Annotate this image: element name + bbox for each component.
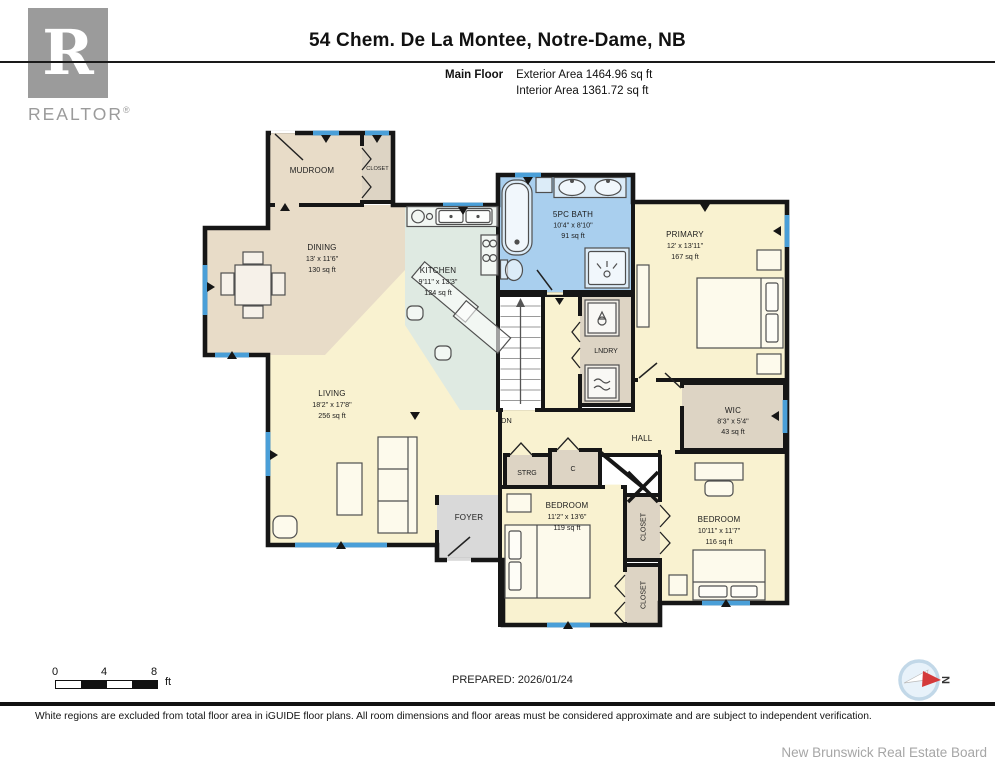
floorplan-page: R REALTOR® 54 Chem. De La Montee, Notre-… xyxy=(0,0,995,768)
scale-unit: ft xyxy=(165,676,171,688)
label-dining-area: 130 sq ft xyxy=(308,265,336,274)
label-stairs-dn: DN xyxy=(501,416,512,425)
scale-4: 4 xyxy=(101,666,107,678)
room-foyer xyxy=(437,495,503,560)
label-primary: PRIMARY xyxy=(666,230,704,239)
label-primary-dims: 12' x 13'11" xyxy=(667,241,704,250)
realtor-brand-text: REALTOR xyxy=(28,104,123,124)
label-dining: DINING xyxy=(307,243,336,252)
exterior-area: Exterior Area 1464.96 sq ft xyxy=(516,69,652,81)
nightstand-icon xyxy=(669,575,687,595)
window xyxy=(515,173,541,178)
window xyxy=(365,131,389,136)
sofa-icon xyxy=(378,437,417,533)
label-wic-dims: 8'3" x 5'4" xyxy=(717,417,749,426)
dryer-icon xyxy=(585,365,619,401)
label-bedroom1: BEDROOM xyxy=(546,501,589,510)
window xyxy=(203,265,208,315)
stove-icon xyxy=(481,235,498,275)
label-foyer: FOYER xyxy=(455,513,484,522)
label-bedroom1-area: 119 sq ft xyxy=(553,523,580,532)
label-living-area: 256 sq ft xyxy=(318,411,346,420)
dresser-icon xyxy=(637,265,649,327)
label-bedroom2-area: 116 sq ft xyxy=(705,537,732,546)
label-bath-dims: 10'4" x 8'10" xyxy=(553,221,593,230)
compass-icon: N xyxy=(896,656,952,704)
label-bedroom2-dims: 10'11" x 11'7" xyxy=(698,526,741,535)
scale-bar-segments xyxy=(55,680,158,689)
label-kitchen: KITCHEN xyxy=(420,266,457,275)
window xyxy=(266,432,271,476)
page-title: 54 Chem. De La Montee, Notre-Dame, NB xyxy=(0,30,995,52)
scale-0: 0 xyxy=(52,666,58,678)
bedroom2-bed-icon xyxy=(693,550,765,600)
label-closet-top: CLOSET xyxy=(366,166,389,172)
label-bath-area: 91 sq ft xyxy=(561,231,585,240)
label-wic-area: 43 sq ft xyxy=(721,427,745,436)
kitchen-counter-icon xyxy=(407,207,498,227)
registered-mark: ® xyxy=(123,105,132,115)
floorplan-drawing: MUDROOM CLOSET DINING 13' x 11'6" 130 sq… xyxy=(195,120,805,645)
desk-icon xyxy=(507,494,531,512)
bedroom1-bed-icon xyxy=(505,525,590,598)
label-living: LIVING xyxy=(318,389,345,398)
shower-icon xyxy=(585,248,629,288)
label-dining-dims: 13' x 11'6" xyxy=(306,254,339,263)
toilet-icon xyxy=(501,260,523,281)
label-bedroom2: BEDROOM xyxy=(698,515,741,524)
label-hall: HALL xyxy=(632,434,653,443)
label-living-dims: 18'2" x 17'8" xyxy=(312,400,352,409)
interior-area: Interior Area 1361.72 sq ft xyxy=(516,85,652,97)
label-kitchen-dims: 9'11" x 13'3" xyxy=(419,277,458,286)
washer-icon xyxy=(585,300,619,336)
window xyxy=(785,215,790,247)
label-closet-c: C xyxy=(570,466,575,473)
nightstand-icon xyxy=(757,250,781,270)
compass-north-label: N xyxy=(939,676,951,684)
label-kitchen-area: 124 sq ft xyxy=(424,288,452,297)
footer-divider xyxy=(0,702,995,706)
title-divider xyxy=(0,61,995,63)
window xyxy=(313,131,339,136)
primary-bed-icon xyxy=(697,278,783,348)
chair-icon xyxy=(273,516,297,538)
label-bath: 5PC BATH xyxy=(553,210,593,219)
label-wic: WIC xyxy=(725,406,741,415)
disclaimer-text: White regions are excluded from total fl… xyxy=(35,711,955,722)
window xyxy=(783,400,788,433)
label-bedroom1-dims: 11'2" x 13'6" xyxy=(548,512,587,521)
realtor-logo: R REALTOR® xyxy=(28,8,148,125)
board-credit: New Brunswick Real Estate Board xyxy=(781,745,987,760)
bathtub-icon xyxy=(502,180,532,255)
realtor-logo-icon: R xyxy=(28,8,108,98)
realtor-logo-wordmark: REALTOR® xyxy=(28,104,148,125)
prepared-date: PREPARED: 2026/01/24 xyxy=(452,674,573,686)
label-primary-area: 167 sq ft xyxy=(671,252,699,261)
scale-8: 8 xyxy=(151,666,157,678)
label-closet1: CLOSET xyxy=(641,512,648,541)
floor-label: Main Floor xyxy=(445,69,503,101)
scale-bar: 0 4 8 ft xyxy=(55,666,195,696)
floor-summary: Main Floor Exterior Area 1464.96 sq ft I… xyxy=(445,69,652,101)
nightstand-icon xyxy=(757,354,781,374)
coffee-table-icon xyxy=(337,463,362,515)
label-mudroom: MUDROOM xyxy=(290,166,335,175)
label-closet2: CLOSET xyxy=(641,580,648,609)
hall-corridor xyxy=(543,295,580,410)
label-strg: STRG xyxy=(517,470,536,477)
label-laundry: LNDRY xyxy=(594,348,618,355)
